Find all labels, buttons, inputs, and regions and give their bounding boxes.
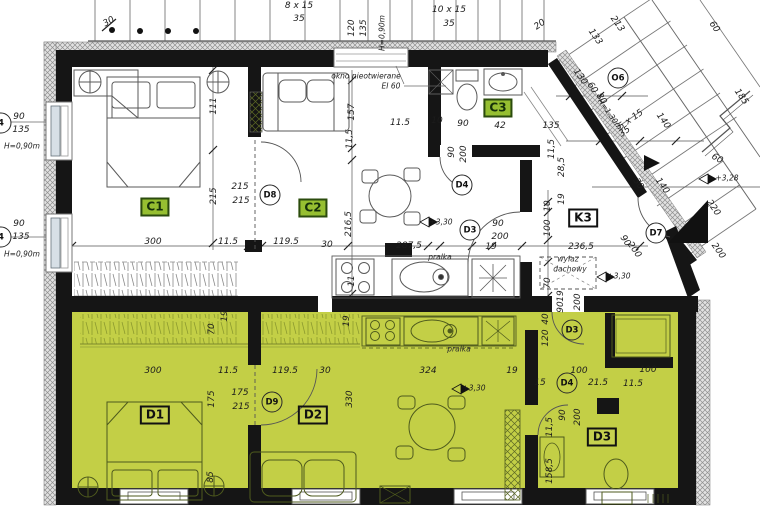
floor-plan-canvas: 8 x 15353010 x 1535120135H=0,90m20213133…	[0, 0, 760, 510]
furniture-c1	[74, 70, 262, 187]
furniture-c2	[263, 73, 520, 298]
furniture-c3	[429, 69, 568, 146]
floor-plan-drawing	[0, 0, 760, 510]
small-arrow	[644, 155, 660, 171]
window-left-upper	[46, 102, 72, 160]
window-top-fixed	[334, 48, 408, 67]
window-left-lower	[46, 214, 72, 272]
landing-k3	[540, 91, 753, 289]
door-openings	[318, 145, 584, 312]
door-opening-d3-bath	[525, 405, 538, 435]
